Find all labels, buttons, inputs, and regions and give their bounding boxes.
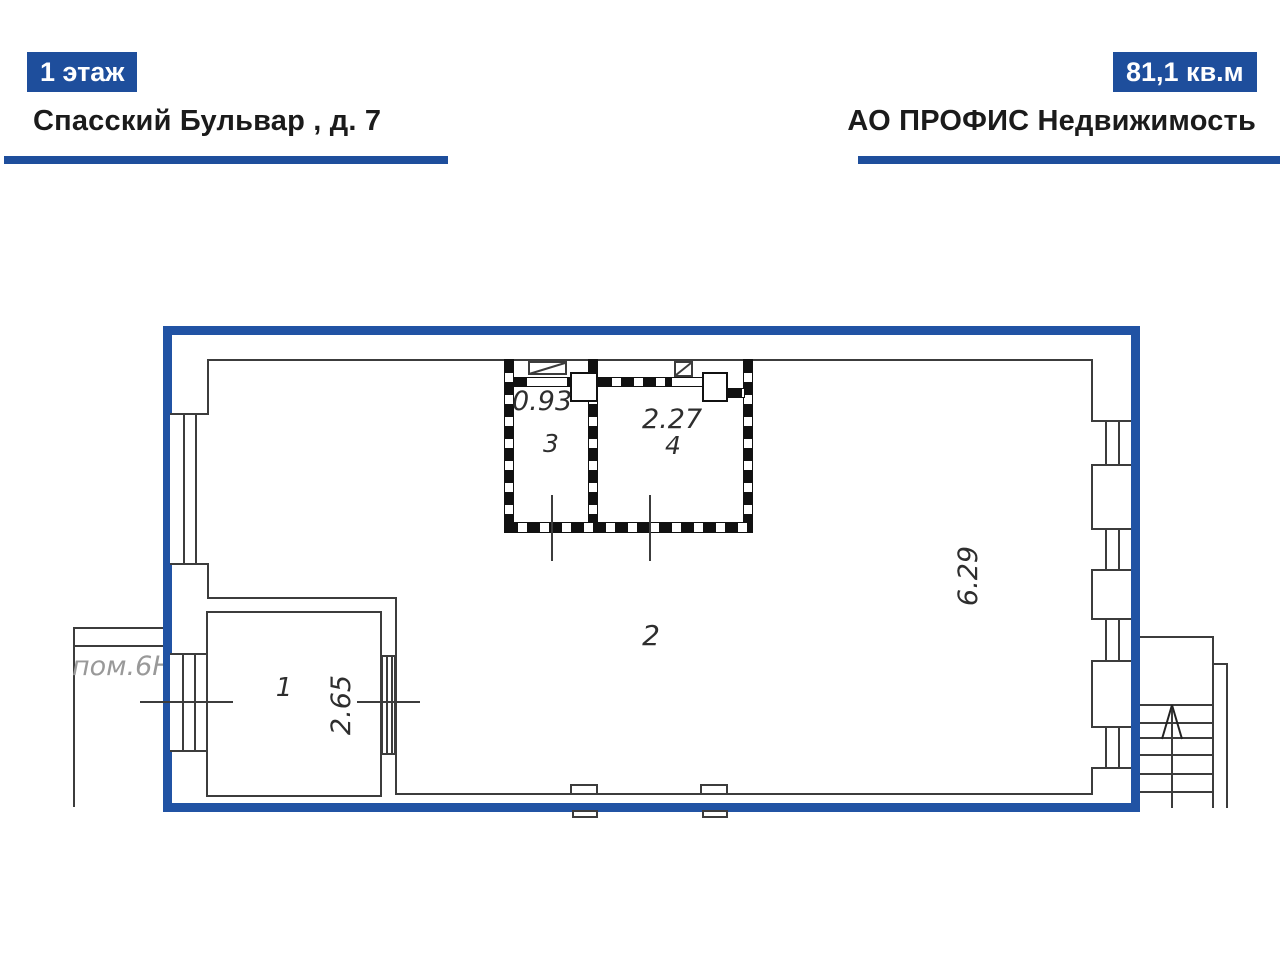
room-2-height-dim: 6.29 (954, 516, 984, 636)
floor-plan: пом.6Н (0, 0, 1280, 960)
room-1-number: 1 (269, 673, 299, 703)
room-3-width-dim: 0.93 (512, 386, 572, 417)
room-4-width-dim: 2.27 (642, 404, 702, 435)
room-2-number: 2 (636, 619, 666, 652)
room-4-number: 4 (658, 431, 688, 460)
room-1-width-dim: 2.65 (327, 645, 357, 765)
room-3-number: 3 (536, 429, 566, 458)
stairs-up-arrow-icon (0, 0, 1280, 960)
